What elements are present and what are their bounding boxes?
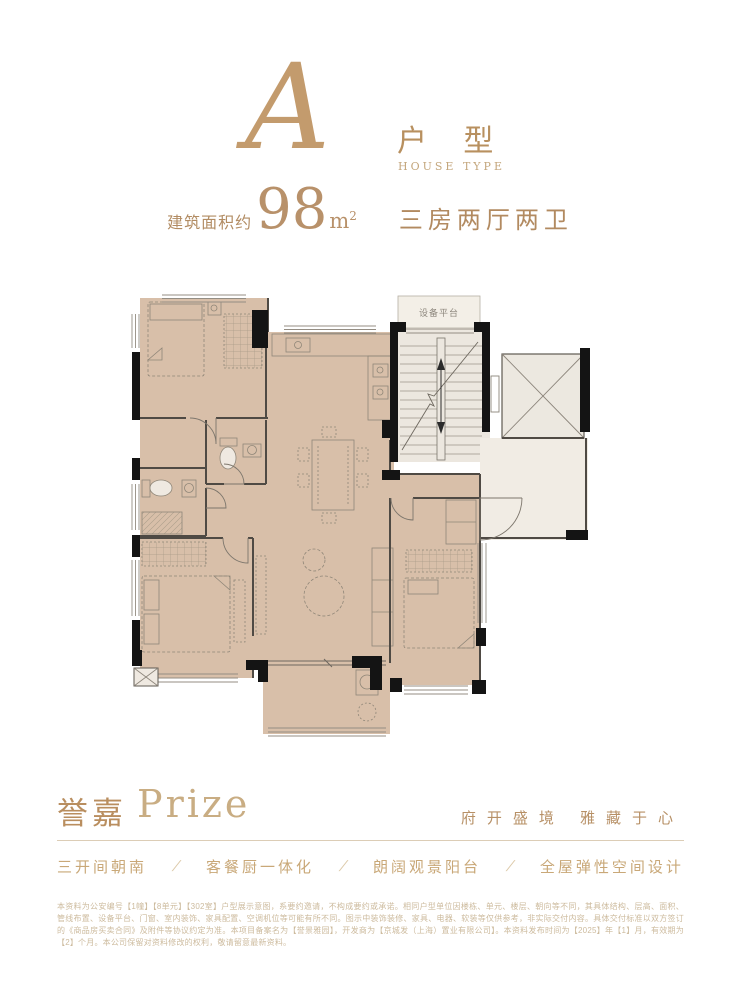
svg-text:设备平台: 设备平台 (419, 307, 459, 318)
disclaimer-text: 本资料为公安编号【1幢】【8单元】【302室】户型展示意图，系要约邀请，不构成要… (57, 901, 684, 949)
feature-item: 全屋弹性空间设计 (540, 856, 684, 877)
brand-name-en: Prize (137, 782, 250, 826)
feature-separator: / (506, 858, 516, 875)
feature-item: 三开间朝南 (57, 856, 147, 877)
equipment-platform: 设备平台 (398, 296, 480, 328)
type-label-en: HOUSE TYPE (398, 160, 505, 173)
house-type-logo: A 户 型 HOUSE TYPE (0, 70, 740, 190)
features-row: 三开间朝南 / 客餐厨一体化 / 朗阔观景阳台 / 全屋弹性空间设计 (57, 856, 684, 877)
layout-description: 三房两厅两卫 (399, 200, 573, 235)
feature-item: 朗阔观景阳台 (373, 856, 481, 877)
area-value: 98 (256, 182, 327, 238)
floor-plan: 设备平台 (128, 288, 612, 750)
feature-item: 客餐厨一体化 (206, 856, 314, 877)
brand-row: 誉嘉 Prize 府开盛境 雅藏于心 (57, 782, 684, 834)
brand-slogan: 府开盛境 雅藏于心 (461, 807, 684, 828)
area-unit: m2 (329, 209, 357, 233)
brand-name-cn: 誉嘉 (57, 788, 127, 833)
type-letter-a: A (245, 42, 326, 172)
type-label-cn: 户 型 (397, 116, 507, 160)
footer-divider (57, 840, 684, 841)
poster-page: A 户 型 HOUSE TYPE 建筑面积约 98 m2 三房两厅两卫 设备 (0, 0, 740, 1004)
stairwell (394, 328, 490, 462)
area-prefix: 建筑面积约 (167, 209, 252, 233)
area-line: 建筑面积约 98 m2 三房两厅两卫 (0, 182, 740, 238)
floor-plan-svg: 设备平台 (128, 288, 612, 750)
column-marker (134, 668, 158, 686)
feature-separator: / (172, 858, 182, 875)
feature-separator: / (339, 858, 349, 875)
elevator-shaft (480, 354, 588, 540)
